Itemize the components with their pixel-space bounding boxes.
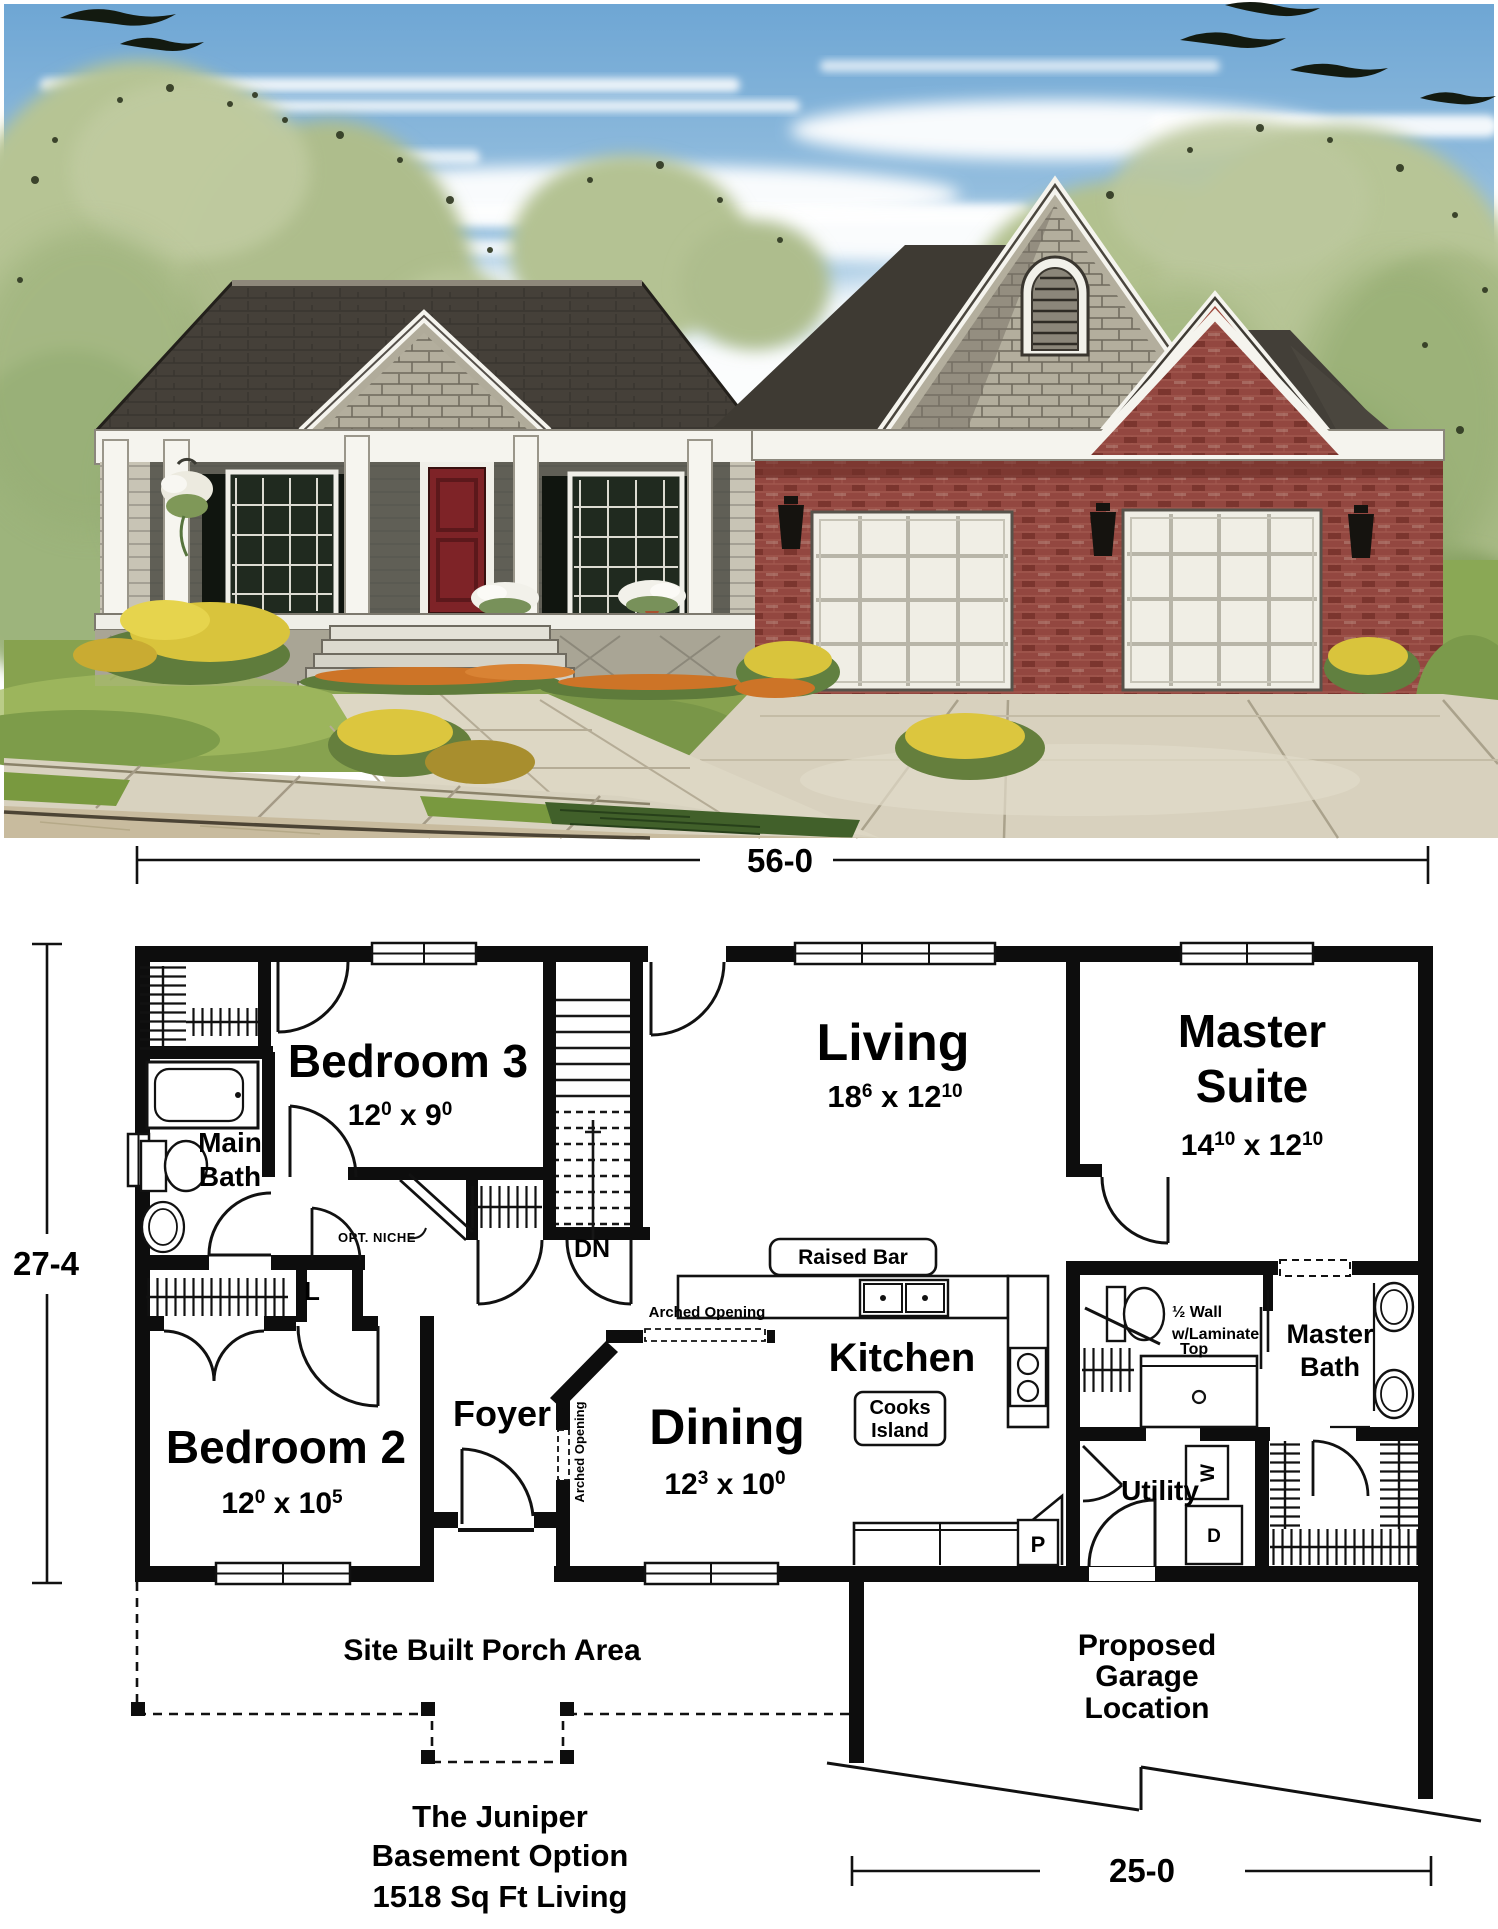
svg-text:Bedroom 2: Bedroom 2 <box>166 1421 406 1473</box>
svg-text:Bath: Bath <box>1300 1352 1360 1382</box>
svg-text:½ Wall: ½ Wall <box>1172 1304 1222 1321</box>
svg-text:120 x 105: 120 x 105 <box>221 1487 343 1520</box>
svg-text:P: P <box>1031 1532 1046 1557</box>
svg-text:Arched Opening: Arched Opening <box>649 1304 766 1321</box>
svg-text:Bedroom 3: Bedroom 3 <box>288 1035 528 1087</box>
svg-text:Cooks: Cooks <box>869 1397 930 1419</box>
svg-text:D: D <box>1207 1526 1221 1547</box>
svg-text:Proposed: Proposed <box>1078 1629 1216 1662</box>
svg-text:Location: Location <box>1085 1692 1210 1725</box>
svg-text:Master: Master <box>1178 1005 1326 1057</box>
svg-text:Arched Opening: Arched Opening <box>572 1401 587 1502</box>
svg-text:27-4: 27-4 <box>13 1245 80 1282</box>
svg-text:1518 Sq Ft Living: 1518 Sq Ft Living <box>373 1879 628 1914</box>
svg-text:Foyer: Foyer <box>453 1393 551 1434</box>
svg-text:Living: Living <box>816 1014 969 1072</box>
svg-text:Bath: Bath <box>199 1161 261 1192</box>
svg-text:Master: Master <box>1286 1319 1374 1349</box>
svg-text:Suite: Suite <box>1196 1060 1308 1112</box>
svg-text:Garage: Garage <box>1095 1660 1198 1693</box>
svg-text:Top: Top <box>1180 1341 1208 1358</box>
svg-text:Site Built Porch Area: Site Built Porch Area <box>343 1634 641 1667</box>
svg-text:Main: Main <box>198 1127 262 1158</box>
svg-text:W: W <box>1198 1464 1219 1482</box>
svg-text:Basement Option: Basement Option <box>372 1838 629 1873</box>
svg-text:Kitchen: Kitchen <box>829 1336 976 1380</box>
svg-text:DN: DN <box>574 1235 610 1263</box>
svg-text:56-0: 56-0 <box>747 842 813 879</box>
svg-text:Raised Bar: Raised Bar <box>798 1246 908 1269</box>
svg-text:120 x 90: 120 x 90 <box>348 1099 453 1132</box>
svg-text:123 x 100: 123 x 100 <box>664 1468 785 1501</box>
svg-text:Island: Island <box>871 1420 929 1442</box>
svg-text:25-0: 25-0 <box>1109 1852 1175 1889</box>
svg-text:Utility: Utility <box>1121 1475 1199 1506</box>
svg-text:OPT. NICHE: OPT. NICHE <box>338 1230 416 1245</box>
svg-text:The Juniper: The Juniper <box>412 1799 588 1834</box>
svg-text:L: L <box>304 1276 320 1306</box>
svg-text:Dining: Dining <box>649 1399 805 1455</box>
svg-text:1410 x 1210: 1410 x 1210 <box>1181 1129 1323 1162</box>
